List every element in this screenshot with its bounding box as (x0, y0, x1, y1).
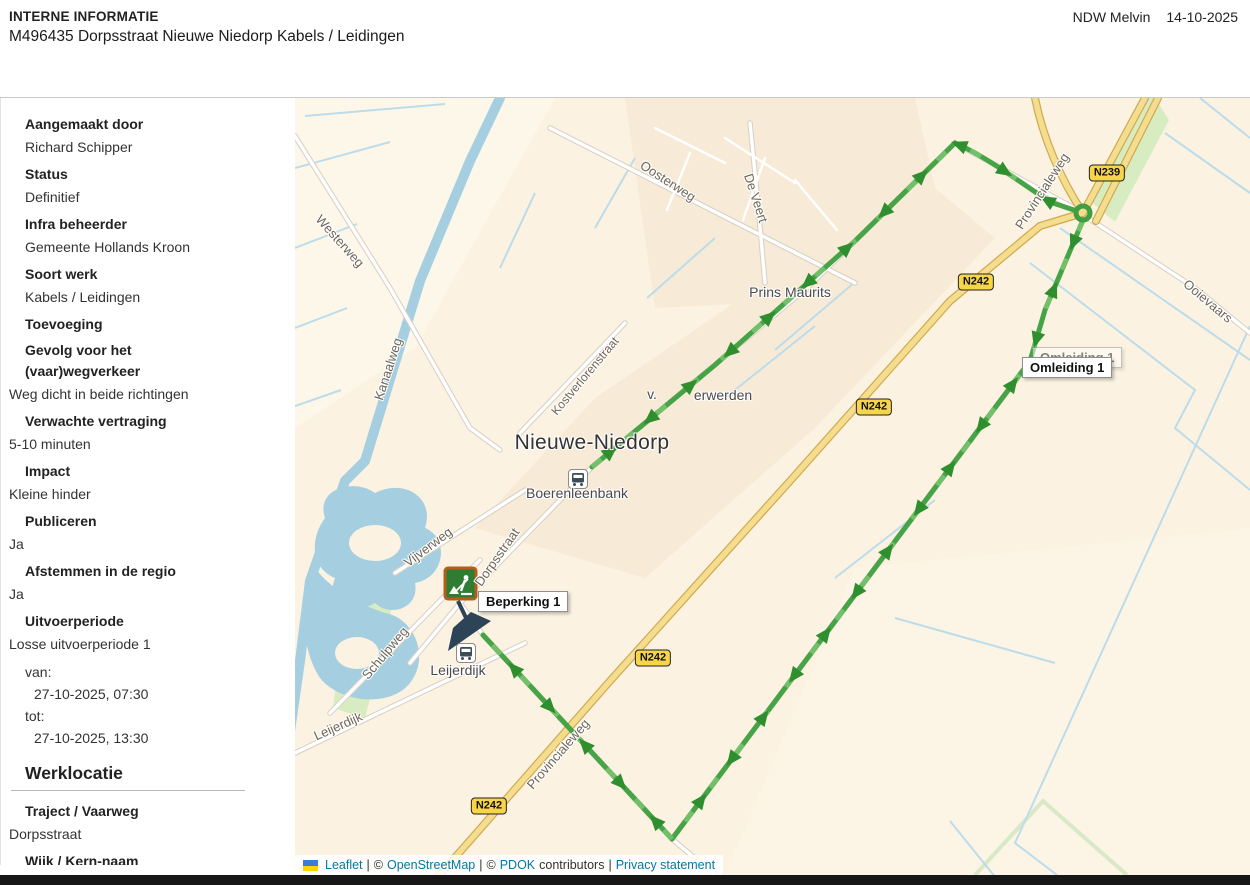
field-value: Losse uitvoerperiode 1 (9, 634, 295, 655)
header-meta: NDW Melvin 14-10-2025 (1073, 9, 1238, 25)
bus-stop-icon (457, 644, 476, 663)
map-canvas (295, 98, 1250, 875)
town-label: Nieuwe-Niedorp (515, 431, 670, 455)
field-value: Dorpsstraat (9, 824, 295, 845)
copyright-symbol: © (374, 858, 383, 872)
field-toevoeging: Toevoeging (1, 314, 295, 335)
internal-info-tag: INTERNE INFORMATIE (9, 9, 159, 24)
header-date: 14-10-2025 (1166, 9, 1238, 25)
field-label: Publiceren (25, 511, 225, 532)
field-label: Verwachte vertraging (25, 411, 225, 432)
field-value: Ja (9, 584, 295, 605)
attr-separator: | (608, 858, 611, 872)
field-value: Definitief (25, 187, 295, 208)
field-afstemmen-regio: Afstemmen in de regio Ja (1, 561, 295, 605)
period-to-label: tot: (25, 705, 295, 727)
field-impact: Impact Kleine hinder (1, 461, 295, 505)
page-title: M496435 Dorpsstraat Nieuwe Niedorp Kabel… (9, 28, 405, 46)
field-value: Kleine hinder (9, 484, 295, 505)
road-badge-n242: N242 (958, 274, 994, 291)
werklocatie-heading: Werklocatie (25, 763, 295, 784)
leaflet-link[interactable]: Leaflet (325, 858, 363, 872)
osm-link[interactable]: OpenStreetMap (387, 858, 475, 872)
place-label-boerenleenbank: Boerenleenbank (526, 485, 628, 501)
ukraine-flag-icon (303, 860, 318, 871)
road-badge-n239: N239 (1089, 165, 1125, 182)
attr-text: contributors (539, 858, 604, 872)
section-divider (11, 790, 245, 791)
field-status: Status Definitief (1, 164, 295, 208)
field-traject-vaarweg: Traject / Vaarweg Dorpsstraat (1, 801, 295, 845)
attr-separator: | (479, 858, 482, 872)
field-value: Richard Schipper (25, 137, 295, 158)
place-label-leijerdijk: Leijerdijk (430, 662, 485, 678)
field-gevolg-wegverkeer: Gevolg voor het (vaar)wegverkeer Weg dic… (1, 340, 295, 405)
beperking-label[interactable]: Beperking 1 (478, 591, 568, 612)
field-uitvoerperiode: Uitvoerperiode Losse uitvoerperiode 1 va… (1, 611, 295, 749)
period-to-value: 27-10-2025, 13:30 (34, 727, 295, 749)
field-aangemaakt-door: Aangemaakt door Richard Schipper (1, 114, 295, 158)
field-publiceren: Publiceren Ja (1, 511, 295, 555)
field-label: Impact (25, 461, 225, 482)
leaflet-map[interactable]: Westerweg Oosterweg De Veert Kanaalweg P… (295, 98, 1250, 875)
melvin-roadwork-page: INTERNE INFORMATIE M496435 Dorpsstraat N… (0, 0, 1250, 885)
field-soort-werk: Soort werk Kabels / Leidingen (1, 264, 295, 308)
field-value: 5-10 minuten (9, 434, 295, 455)
privacy-statement-link[interactable]: Privacy statement (616, 858, 715, 872)
field-infra-beheerder: Infra beheerder Gemeente Hollands Kroon (1, 214, 295, 258)
pdok-link[interactable]: PDOK (500, 858, 535, 872)
attr-separator: | (367, 858, 370, 872)
field-verwachte-vertraging: Verwachte vertraging 5-10 minuten (1, 411, 295, 455)
field-label: Afstemmen in de regio (25, 561, 225, 582)
bottom-bar (0, 875, 1250, 885)
map-attribution: Leaflet | © OpenStreetMap | © PDOK contr… (295, 855, 723, 875)
field-label: Traject / Vaarweg (25, 801, 225, 822)
details-sidebar: Aangemaakt door Richard Schipper Status … (0, 98, 295, 865)
period-from-value: 27-10-2025, 07:30 (34, 683, 295, 705)
field-label: Status (25, 164, 225, 185)
place-label-erwerden: erwerden (694, 387, 752, 403)
copyright-symbol: © (487, 858, 496, 872)
road-badge-n242: N242 (635, 650, 671, 667)
field-value: Ja (9, 534, 295, 555)
field-label: Wijk / Kern-naam (25, 851, 225, 865)
place-label-prins-maurits: Prins Maurits (749, 284, 831, 300)
field-wijk-kern-naam: Wijk / Kern-naam (1, 851, 295, 865)
road-badge-n242: N242 (856, 399, 892, 416)
field-value: Kabels / Leidingen (25, 287, 295, 308)
field-label: Infra beheerder (25, 214, 225, 235)
omleiding-label[interactable]: Omleiding 1 (1022, 357, 1112, 378)
field-label: Soort werk (25, 264, 225, 285)
field-label: Gevolg voor het (vaar)wegverkeer (25, 340, 190, 382)
field-label: Aangemaakt door (25, 114, 225, 135)
place-label-v: v. (647, 386, 657, 402)
period-from-label: van: (25, 661, 295, 683)
field-value: Weg dicht in beide richtingen (9, 384, 295, 405)
field-label: Uitvoerperiode (25, 611, 225, 632)
field-label: Toevoeging (25, 314, 225, 335)
field-value: Gemeente Hollands Kroon (25, 237, 295, 258)
road-badge-n242: N242 (471, 798, 507, 815)
user-name: NDW Melvin (1073, 9, 1151, 25)
